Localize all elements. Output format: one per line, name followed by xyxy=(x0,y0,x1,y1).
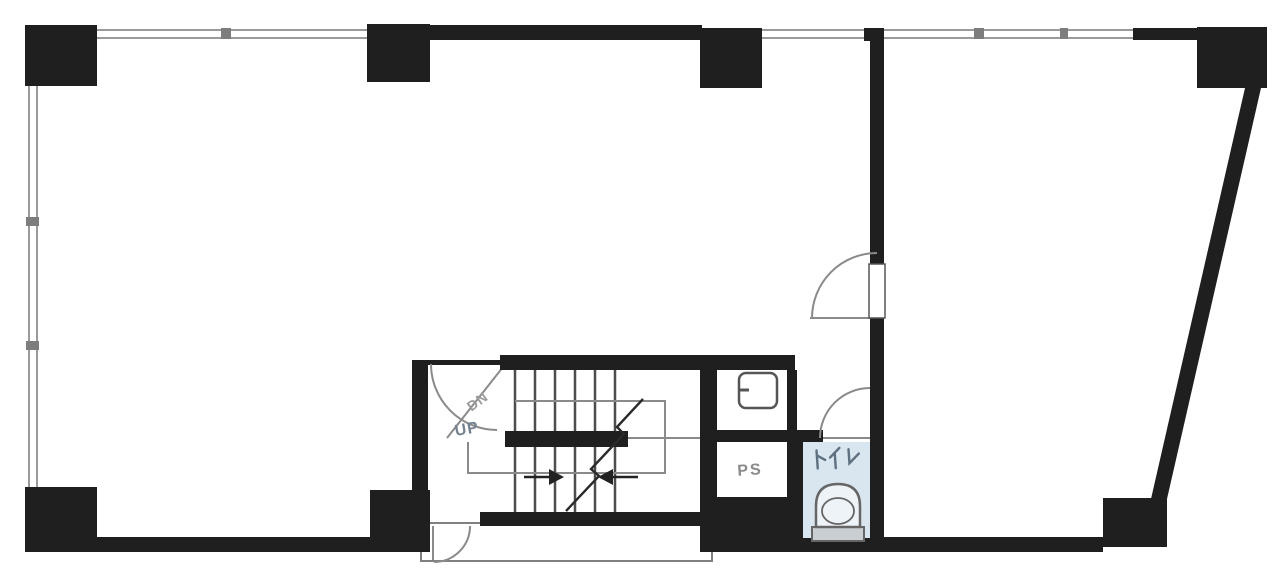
fixture-room-wall-right xyxy=(787,370,797,432)
floor-plan-drawing: トイレ DN UP PS xyxy=(0,0,1280,587)
wall-segment xyxy=(870,537,1103,552)
interior-wall-upper xyxy=(870,40,884,264)
mullion-tick xyxy=(221,28,231,39)
entrance-vestibule-outline xyxy=(421,523,712,561)
toilet-bowl-icon xyxy=(812,484,864,541)
room-door-leaf xyxy=(869,264,885,318)
interior-wall-lower xyxy=(870,318,884,538)
column xyxy=(367,24,430,82)
wall-segment xyxy=(480,512,710,526)
wall-segment xyxy=(1133,28,1199,40)
stair-wall-top xyxy=(500,355,795,370)
wall-segment xyxy=(97,537,370,552)
pipe-shaft-label: PS xyxy=(737,461,763,480)
stair-wall-left xyxy=(412,362,428,492)
column xyxy=(1197,27,1267,88)
mullion-tick xyxy=(1060,28,1068,39)
toilet-tank xyxy=(812,527,864,541)
mullion-tick xyxy=(26,217,39,226)
column xyxy=(700,28,762,88)
plan-background xyxy=(0,0,1280,587)
ps-toilet-divider-wall xyxy=(787,430,803,538)
mullion-tick xyxy=(26,341,39,350)
column xyxy=(25,487,97,552)
column xyxy=(25,25,97,86)
column xyxy=(370,490,430,552)
wash-basin-icon xyxy=(739,373,777,408)
fixture-ps-divider-wall xyxy=(703,430,797,442)
mullion-tick xyxy=(974,28,984,39)
floor-plan-page: トイレ DN UP PS xyxy=(0,0,1280,587)
wall-segment xyxy=(430,25,702,40)
stair-mid-rail-bar xyxy=(505,431,628,447)
wall-segment xyxy=(864,28,884,41)
